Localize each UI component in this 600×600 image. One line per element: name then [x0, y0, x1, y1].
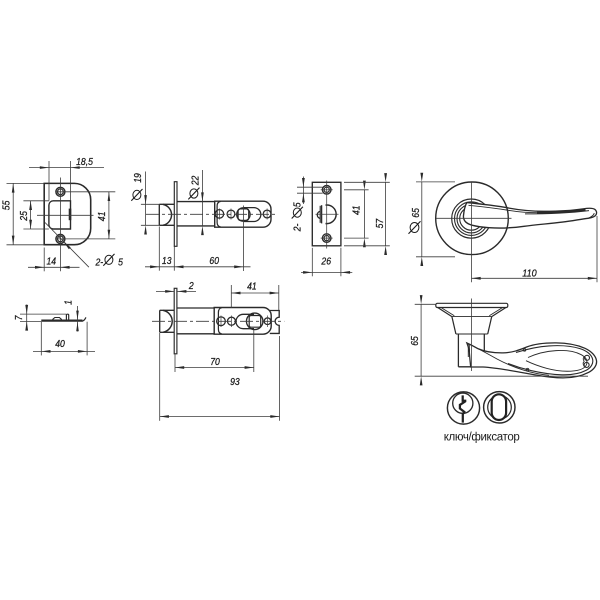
svg-text:41: 41	[351, 205, 363, 215]
svg-text:7: 7	[13, 315, 25, 321]
svg-text:25: 25	[18, 211, 30, 222]
svg-text:19: 19	[132, 173, 144, 183]
svg-text:26: 26	[321, 255, 332, 267]
svg-text:65: 65	[410, 208, 422, 218]
svg-text:5: 5	[118, 256, 123, 268]
svg-text:5: 5	[291, 202, 303, 207]
svg-text:110: 110	[522, 267, 537, 279]
svg-text:41: 41	[247, 280, 257, 292]
svg-text:41: 41	[96, 212, 108, 222]
svg-text:70: 70	[210, 356, 220, 368]
svg-text:ключ/фиксатор: ключ/фиксатор	[444, 431, 520, 443]
svg-text:2: 2	[188, 280, 194, 292]
svg-text:14: 14	[47, 256, 57, 268]
svg-text:13: 13	[162, 255, 172, 267]
svg-text:65: 65	[409, 336, 421, 346]
svg-text:57: 57	[374, 218, 386, 229]
svg-text:18,5: 18,5	[76, 156, 93, 168]
svg-text:40: 40	[55, 338, 65, 350]
svg-text:93: 93	[230, 376, 240, 388]
svg-text:60: 60	[209, 255, 219, 267]
svg-text:2-: 2-	[95, 256, 104, 268]
svg-text:55: 55	[0, 200, 12, 210]
svg-text:1: 1	[62, 300, 74, 305]
svg-text:22: 22	[189, 176, 201, 187]
svg-text:2-: 2-	[291, 223, 303, 232]
